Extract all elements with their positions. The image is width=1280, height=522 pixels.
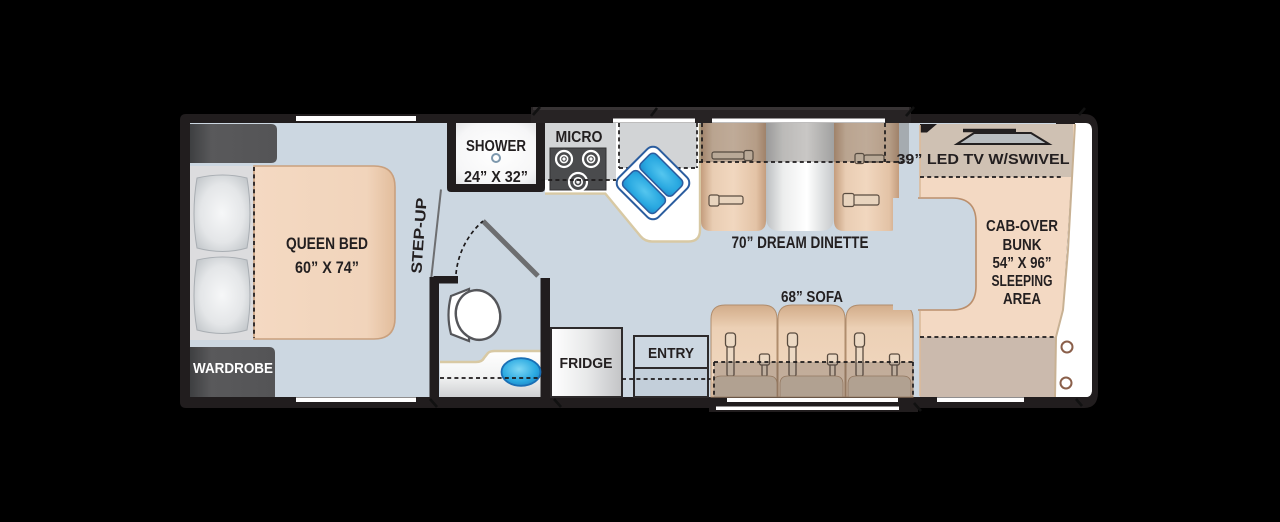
svg-text:SHOWER: SHOWER [466, 138, 526, 155]
svg-text:39” LED TV W/SWIVEL: 39” LED TV W/SWIVEL [897, 152, 1070, 168]
svg-text:ENTRY: ENTRY [648, 345, 694, 362]
svg-text:FRIDGE: FRIDGE [560, 355, 613, 372]
svg-text:AREA: AREA [1003, 291, 1041, 308]
svg-text:54” X 96”: 54” X 96” [993, 255, 1052, 272]
svg-text:60” X 74”: 60” X 74” [295, 258, 359, 277]
svg-text:MICRO: MICRO [556, 129, 603, 146]
svg-text:QUEEN BED: QUEEN BED [286, 234, 368, 253]
svg-text:BUNK: BUNK [1003, 237, 1043, 254]
svg-text:SLEEPING: SLEEPING [992, 273, 1053, 290]
svg-text:CAB-OVER: CAB-OVER [986, 218, 1058, 235]
svg-text:70” DREAM DINETTE: 70” DREAM DINETTE [732, 234, 869, 252]
svg-text:WARDROBE: WARDROBE [193, 360, 273, 377]
svg-text:68” SOFA: 68” SOFA [781, 289, 843, 306]
svg-text:24” X 32”: 24” X 32” [464, 169, 528, 186]
